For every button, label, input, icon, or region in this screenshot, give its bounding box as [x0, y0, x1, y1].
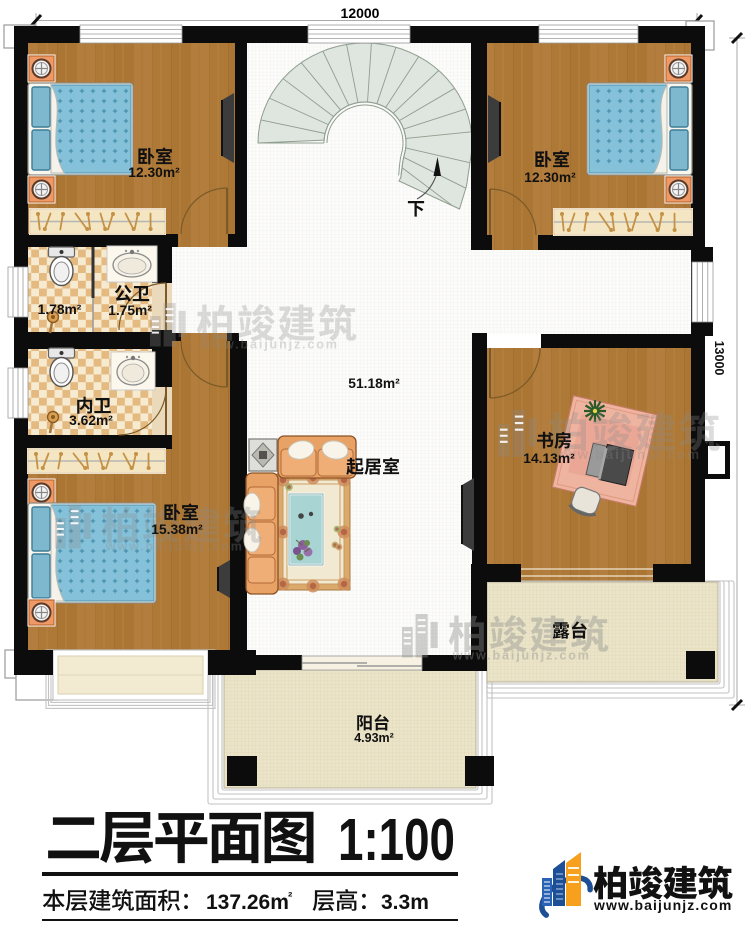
svg-text:12.30m²: 12.30m² [524, 170, 576, 185]
svg-text:3.62m²: 3.62m² [69, 413, 113, 428]
svg-text:²: ² [288, 889, 293, 904]
svg-text:12000: 12000 [341, 5, 380, 21]
svg-text:1.78m²: 1.78m² [38, 302, 82, 317]
svg-text:14.13m²: 14.13m² [523, 451, 575, 466]
svg-text:1.75m²: 1.75m² [108, 303, 152, 318]
svg-text:13000: 13000 [712, 341, 726, 376]
svg-text:15.38m²: 15.38m² [151, 522, 203, 537]
svg-text:51.18m²: 51.18m² [348, 376, 400, 391]
svg-text:137.26m: 137.26m [206, 891, 289, 914]
svg-text:1:100: 1:100 [338, 807, 455, 873]
svg-text:3.3m: 3.3m [381, 891, 429, 914]
svg-text:www.baijunjz.com: www.baijunjz.com [452, 648, 591, 662]
svg-text:www.baijunjz.com: www.baijunjz.com [105, 539, 244, 553]
svg-text:4.93m²: 4.93m² [354, 731, 394, 745]
svg-text:12.30m²: 12.30m² [128, 165, 180, 180]
svg-text:www.baijunjz.com: www.baijunjz.com [200, 337, 339, 351]
svg-text:www.baijunjz.com: www.baijunjz.com [593, 897, 732, 913]
